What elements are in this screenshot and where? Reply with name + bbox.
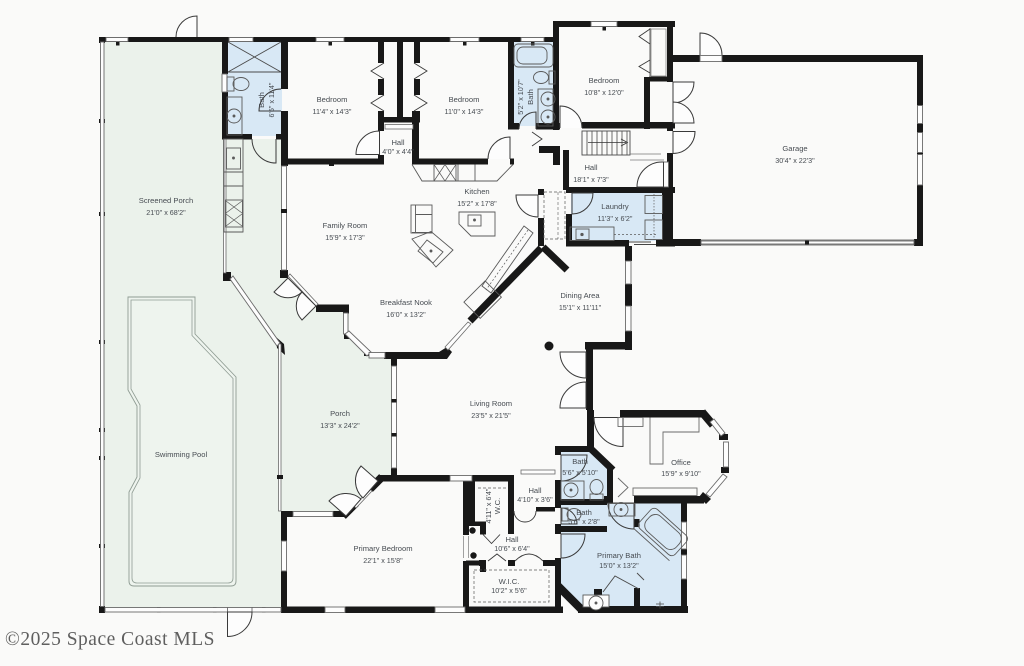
- svg-text:©2025 Space Coast MLS: ©2025 Space Coast MLS: [5, 629, 215, 650]
- svg-text:Hall: Hall: [505, 535, 518, 544]
- svg-text:15'1" x 11'11": 15'1" x 11'11": [559, 303, 602, 312]
- svg-text:Office: Office: [671, 458, 691, 467]
- svg-text:10'8" x 12'0": 10'8" x 12'0": [584, 88, 624, 97]
- svg-text:Laundry: Laundry: [601, 202, 629, 211]
- svg-text:5'6" x 5'10": 5'6" x 5'10": [562, 468, 598, 477]
- svg-text:Hall: Hall: [584, 163, 597, 172]
- svg-text:Bedroom: Bedroom: [589, 76, 620, 85]
- svg-text:Bedroom: Bedroom: [317, 95, 348, 104]
- svg-text:10'6" x 6'4": 10'6" x 6'4": [494, 544, 530, 553]
- svg-text:Primary Bath: Primary Bath: [597, 551, 641, 560]
- svg-text:15'2" x 17'8": 15'2" x 17'8": [457, 199, 497, 208]
- svg-text:Bedroom: Bedroom: [449, 95, 480, 104]
- svg-text:W.C.: W.C.: [493, 498, 502, 514]
- svg-text:Hall: Hall: [528, 486, 541, 495]
- svg-text:Bath: Bath: [257, 92, 266, 108]
- svg-text:5'2" x 10'7": 5'2" x 10'7": [516, 79, 525, 115]
- svg-text:Porch: Porch: [330, 409, 350, 418]
- svg-text:Bath: Bath: [526, 89, 535, 105]
- svg-text:10'2" x 5'6": 10'2" x 5'6": [491, 586, 527, 595]
- svg-text:W.I.C.: W.I.C.: [499, 577, 520, 586]
- svg-text:15'9" x 17'3": 15'9" x 17'3": [325, 233, 365, 242]
- svg-text:Dining Area: Dining Area: [560, 291, 600, 300]
- svg-text:18'1" x 7'3": 18'1" x 7'3": [573, 175, 609, 184]
- svg-text:11'0" x 14'3": 11'0" x 14'3": [445, 107, 484, 116]
- svg-text:Bath: Bath: [572, 457, 588, 466]
- svg-text:16'0" x 13'2": 16'0" x 13'2": [386, 310, 426, 319]
- svg-text:15'9" x 9'10": 15'9" x 9'10": [661, 469, 701, 478]
- svg-text:Kitchen: Kitchen: [464, 187, 489, 196]
- svg-text:5'6" x 2'8": 5'6" x 2'8": [568, 517, 600, 526]
- svg-text:Breakfast Nook: Breakfast Nook: [380, 298, 432, 307]
- svg-text:Primary Bedroom: Primary Bedroom: [353, 544, 412, 553]
- svg-text:4'0" x 4'4": 4'0" x 4'4": [382, 147, 414, 156]
- svg-text:Bath: Bath: [576, 508, 592, 517]
- svg-text:Hall: Hall: [391, 138, 404, 147]
- svg-text:6'5" x 11'4": 6'5" x 11'4": [267, 82, 276, 117]
- svg-text:21'0" x 68'2": 21'0" x 68'2": [146, 208, 186, 217]
- svg-text:Screened Porch: Screened Porch: [139, 196, 193, 205]
- svg-text:30'4" x 22'3": 30'4" x 22'3": [775, 156, 815, 165]
- svg-text:Swimming Pool: Swimming Pool: [155, 450, 208, 459]
- svg-text:15'0" x 13'2": 15'0" x 13'2": [599, 561, 639, 570]
- svg-text:Garage: Garage: [782, 144, 807, 153]
- svg-text:13'3" x 24'2": 13'3" x 24'2": [320, 421, 360, 430]
- svg-text:4'10" x 3'6": 4'10" x 3'6": [517, 495, 553, 504]
- svg-text:11'4" x 14'3": 11'4" x 14'3": [313, 107, 352, 116]
- svg-text:Living Room: Living Room: [470, 399, 512, 408]
- svg-text:Family Room: Family Room: [323, 221, 368, 230]
- svg-text:23'5" x 21'5": 23'5" x 21'5": [471, 411, 511, 420]
- svg-text:22'1" x 15'8": 22'1" x 15'8": [363, 556, 403, 565]
- svg-text:4'11" x 6'4": 4'11" x 6'4": [484, 488, 493, 523]
- svg-text:11'3" x 6'2": 11'3" x 6'2": [598, 214, 633, 223]
